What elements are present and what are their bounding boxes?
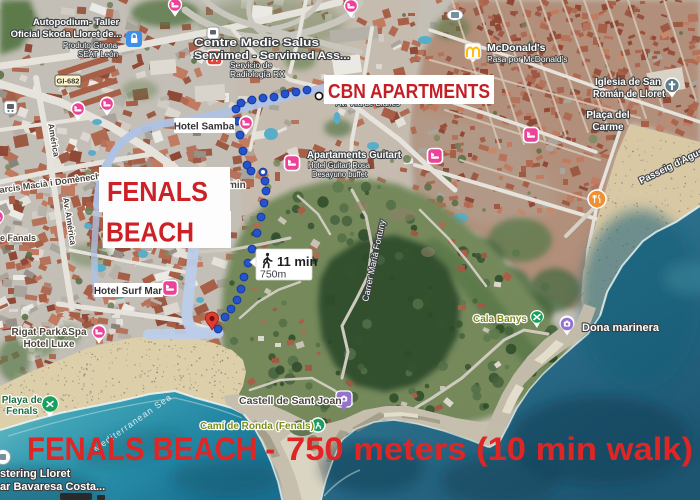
svg-text:Hotel Surf Mar: Hotel Surf Mar [94, 286, 162, 297]
svg-text:FENALS BEACH -: FENALS BEACH - [27, 431, 275, 467]
svg-text:Rigat Park&Spa: Rigat Park&Spa [11, 327, 86, 338]
svg-text:min: min [228, 180, 246, 191]
svg-text:Hotel Samba: Hotel Samba [174, 122, 235, 133]
svg-text:Dona marinera: Dona marinera [582, 322, 660, 334]
svg-text:Centre Medic Salus: Centre Medic Salus [194, 37, 319, 49]
svg-text:stering Lloret: stering Lloret [0, 468, 71, 480]
svg-text:Fenals: Fenals [6, 406, 38, 417]
svg-text:Apartaments Guitart: Apartaments Guitart [307, 149, 401, 161]
svg-text:750m: 750m [260, 269, 287, 281]
svg-text:Iglesia de San: Iglesia de San [595, 76, 661, 88]
svg-text:Hotel Guitart Rosa: Hotel Guitart Rosa [308, 161, 371, 170]
svg-text:Carme: Carme [592, 122, 624, 133]
svg-text:GI-682: GI-682 [57, 77, 80, 86]
svg-text:Hotel Luxe: Hotel Luxe [23, 339, 75, 350]
svg-text:Radiología RX: Radiología RX [230, 69, 285, 79]
svg-text:Oficial Skoda Lloret de...: Oficial Skoda Lloret de... [11, 29, 122, 40]
svg-text:11 min: 11 min [277, 254, 318, 269]
svg-text:Pasa por McDonald's: Pasa por McDonald's [487, 54, 568, 64]
svg-text:Castell de Sant Joan: Castell de Sant Joan [239, 395, 342, 407]
svg-text:CBN APARTMENTS: CBN APARTMENTS [328, 81, 490, 103]
svg-text:ar Bavaresa Costa...: ar Bavaresa Costa... [0, 481, 105, 493]
svg-text:Produto Girona: Produto Girona [63, 41, 118, 50]
svg-text:Desayuno buffet: Desayuno buffet [312, 170, 368, 179]
svg-text:750 meters (10 min walk): 750 meters (10 min walk) [286, 431, 693, 467]
svg-text:Cala Banys: Cala Banys [473, 314, 527, 325]
svg-text:Autopodium- Taller: Autopodium- Taller [33, 17, 120, 28]
svg-text:McDonald's: McDonald's [487, 42, 546, 54]
svg-text:Playa de: Playa de [2, 395, 43, 406]
svg-text:FENALS: FENALS [107, 176, 208, 207]
svg-text:SEAT León: SEAT León [78, 50, 118, 59]
svg-text:Plaça del: Plaça del [586, 110, 630, 121]
svg-text:Román de Lloret: Román de Lloret [593, 88, 665, 100]
svg-text:BEACH: BEACH [106, 217, 194, 248]
svg-text:e Fanals: e Fanals [0, 233, 36, 243]
